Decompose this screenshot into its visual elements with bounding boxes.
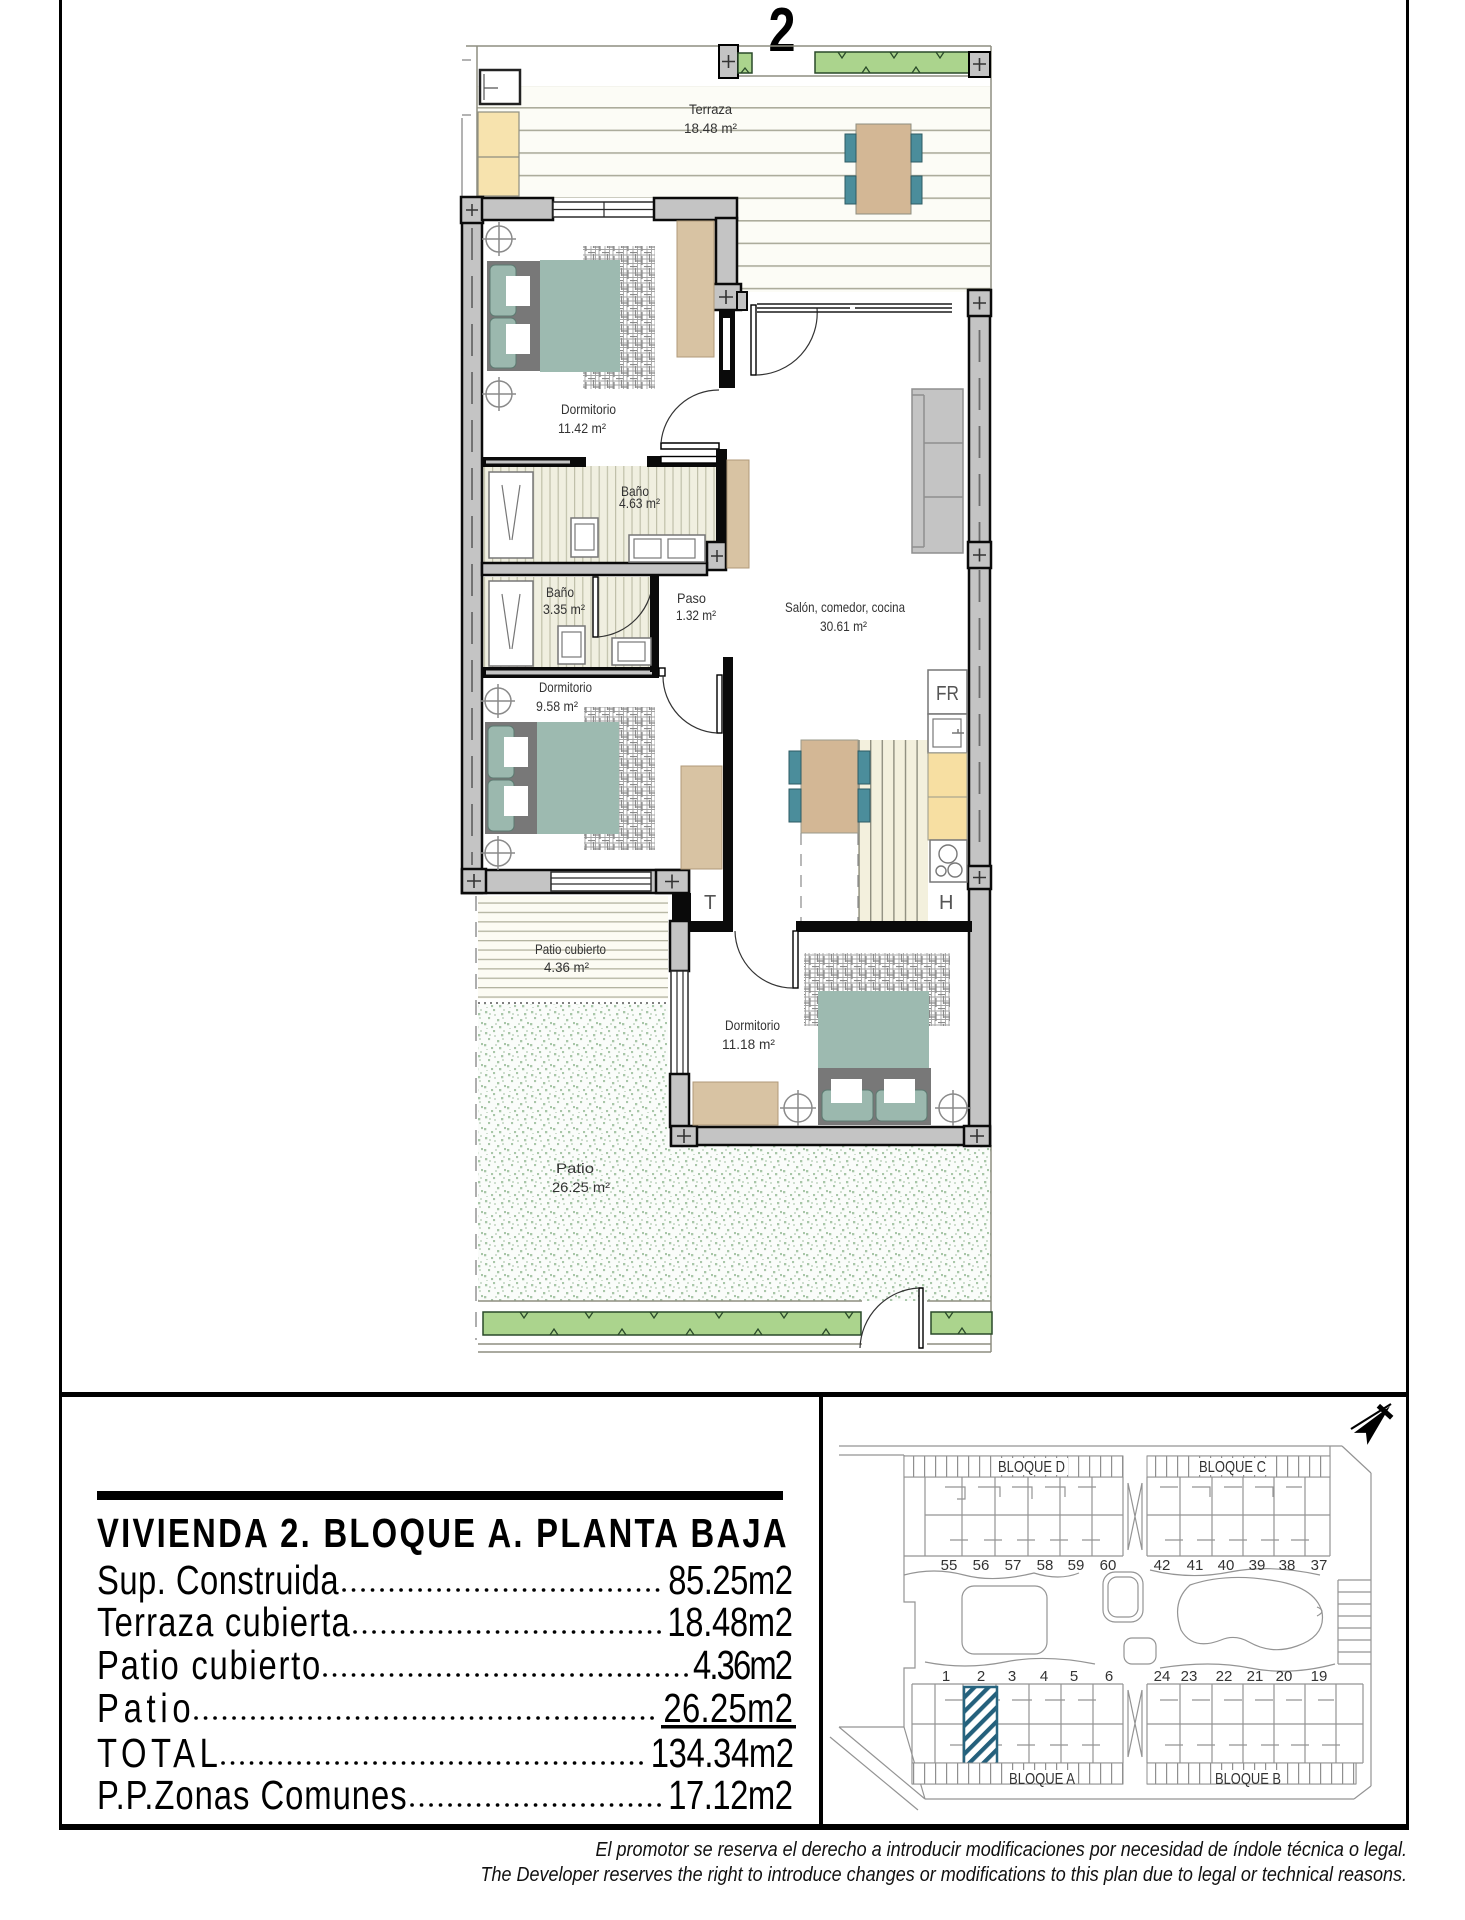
svg-text:Patio cubierto: Patio cubierto bbox=[535, 941, 606, 957]
svg-text:TOTAL: TOTAL bbox=[97, 1729, 218, 1775]
svg-text:134.34m2: 134.34m2 bbox=[651, 1729, 794, 1775]
svg-text:37: 37 bbox=[1311, 1557, 1328, 1574]
svg-text:VIVIENDA 2. BLOQUE A. PLANTA B: VIVIENDA 2. BLOQUE A. PLANTA BAJA bbox=[97, 1509, 787, 1555]
svg-text:11.42 m²: 11.42 m² bbox=[558, 420, 606, 436]
svg-text:59: 59 bbox=[1068, 1557, 1085, 1574]
svg-text:21: 21 bbox=[1247, 1668, 1264, 1685]
svg-text:H: H bbox=[939, 892, 953, 914]
svg-text:Terraza: Terraza bbox=[689, 101, 732, 117]
svg-text:Salón, comedor, cocina: Salón, comedor, cocina bbox=[785, 599, 905, 615]
svg-text:18.48m2: 18.48m2 bbox=[667, 1598, 793, 1644]
svg-text:Terraza cubierta: Terraza cubierta bbox=[97, 1598, 350, 1644]
svg-text:Paso: Paso bbox=[677, 590, 706, 606]
svg-text:FR: FR bbox=[936, 683, 959, 705]
svg-text:4.63 m²: 4.63 m² bbox=[619, 495, 660, 511]
svg-text:85.25m2: 85.25m2 bbox=[668, 1556, 793, 1602]
svg-text:BLOQUE B: BLOQUE B bbox=[1215, 1771, 1281, 1788]
svg-text:58: 58 bbox=[1037, 1557, 1054, 1574]
svg-text:1.32 m²: 1.32 m² bbox=[676, 607, 716, 623]
svg-text:55: 55 bbox=[941, 1557, 958, 1574]
svg-text:4.36m2: 4.36m2 bbox=[693, 1641, 793, 1687]
svg-text:30.61 m²: 30.61 m² bbox=[820, 618, 867, 634]
svg-text:BLOQUE C: BLOQUE C bbox=[1199, 1459, 1266, 1476]
svg-text:22: 22 bbox=[1216, 1668, 1233, 1685]
svg-text:41: 41 bbox=[1187, 1557, 1204, 1574]
svg-text:38: 38 bbox=[1279, 1557, 1296, 1574]
svg-text:Sup. Construida: Sup. Construida bbox=[97, 1556, 339, 1602]
svg-text:9.58 m²: 9.58 m² bbox=[536, 698, 578, 714]
svg-text:6: 6 bbox=[1105, 1668, 1113, 1685]
svg-text:Patio: Patio bbox=[556, 1160, 594, 1176]
svg-text:60: 60 bbox=[1100, 1557, 1117, 1574]
svg-text:20: 20 bbox=[1276, 1668, 1293, 1685]
svg-text:4.36 m²: 4.36 m² bbox=[544, 959, 589, 975]
svg-text:5: 5 bbox=[1070, 1668, 1078, 1685]
svg-text:26.25 m²: 26.25 m² bbox=[552, 1179, 610, 1195]
svg-text:26.25m2: 26.25m2 bbox=[663, 1684, 793, 1730]
svg-text:39: 39 bbox=[1249, 1557, 1266, 1574]
svg-text:4: 4 bbox=[1040, 1668, 1048, 1685]
svg-text:18.48 m²: 18.48 m² bbox=[684, 120, 737, 136]
svg-text:57: 57 bbox=[1005, 1557, 1022, 1574]
svg-text:11.18 m²: 11.18 m² bbox=[722, 1036, 775, 1052]
svg-text:24: 24 bbox=[1154, 1668, 1171, 1685]
svg-text:2: 2 bbox=[769, 0, 796, 65]
svg-text:56: 56 bbox=[973, 1557, 990, 1574]
svg-text:3: 3 bbox=[1008, 1668, 1016, 1685]
svg-text:1: 1 bbox=[942, 1668, 950, 1685]
svg-text:BLOQUE A: BLOQUE A bbox=[1009, 1771, 1075, 1788]
svg-text:23: 23 bbox=[1181, 1668, 1198, 1685]
svg-text:19: 19 bbox=[1311, 1668, 1328, 1685]
svg-text:BLOQUE D: BLOQUE D bbox=[998, 1459, 1065, 1476]
svg-text:Dormitorio: Dormitorio bbox=[539, 679, 592, 695]
svg-text:Dormitorio: Dormitorio bbox=[725, 1017, 780, 1033]
svg-text:2: 2 bbox=[977, 1668, 985, 1685]
svg-text:3.35 m²: 3.35 m² bbox=[543, 601, 585, 617]
svg-text:42: 42 bbox=[1154, 1557, 1171, 1574]
svg-text:17.12m2: 17.12m2 bbox=[668, 1771, 793, 1817]
svg-text:Baño: Baño bbox=[546, 584, 574, 600]
svg-text:T: T bbox=[704, 892, 716, 914]
svg-text:Dormitorio: Dormitorio bbox=[561, 401, 616, 417]
svg-text:40: 40 bbox=[1218, 1557, 1235, 1574]
